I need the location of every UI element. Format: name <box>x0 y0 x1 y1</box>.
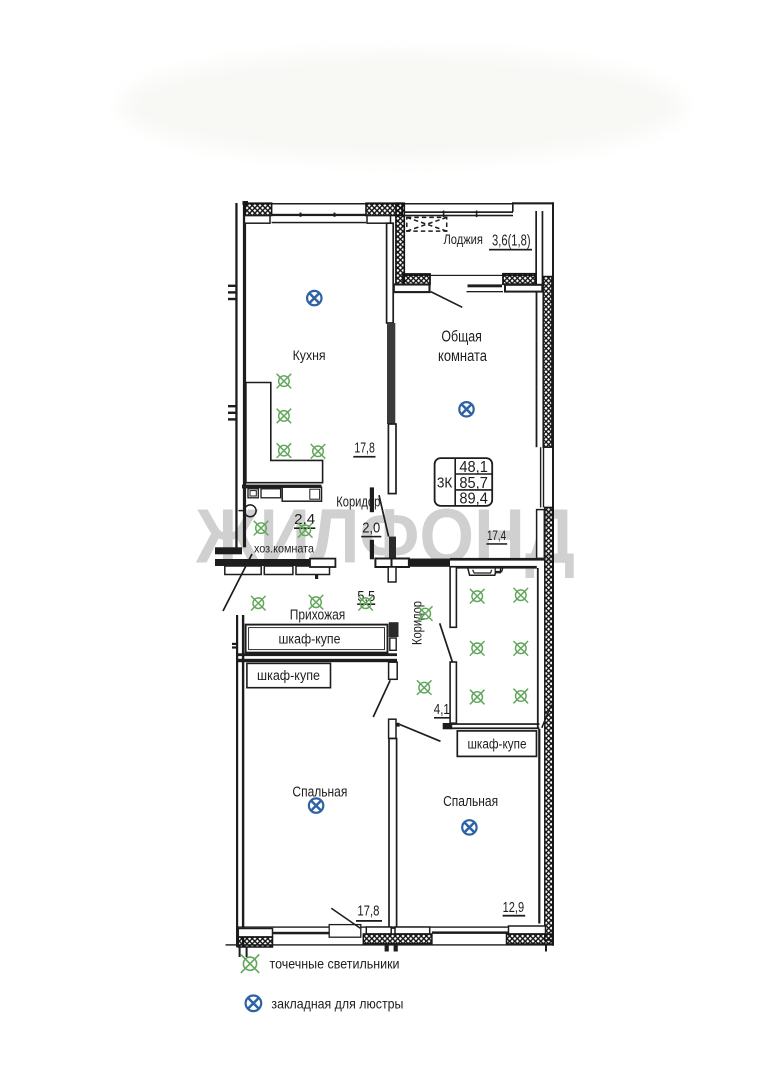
svg-text:12,9: 12,9 <box>503 899 525 916</box>
svg-text:17,4: 17,4 <box>487 527 506 543</box>
svg-text:Прихожая: Прихожая <box>290 606 346 623</box>
svg-text:Кухня: Кухня <box>293 348 326 363</box>
svg-text:комната: комната <box>438 348 487 365</box>
svg-text:17,8: 17,8 <box>357 902 379 919</box>
svg-text:шкаф-купе: шкаф-купе <box>279 632 341 647</box>
svg-text:точечные светильники: точечные светильники <box>270 956 400 972</box>
svg-text:3,6(1,8): 3,6(1,8) <box>492 232 531 249</box>
svg-text:2,0: 2,0 <box>362 519 380 536</box>
svg-text:шкаф-купе: шкаф-купе <box>468 736 527 751</box>
svg-text:Спальная: Спальная <box>292 784 347 801</box>
svg-text:85,7: 85,7 <box>459 475 488 492</box>
svg-text:шкаф-купе: шкаф-купе <box>257 668 320 683</box>
svg-text:Спальная: Спальная <box>443 793 498 810</box>
svg-text:Общая: Общая <box>441 328 482 345</box>
svg-text:Лоджия: Лоджия <box>443 231 483 247</box>
svg-text:48,1: 48,1 <box>459 459 488 476</box>
svg-text:хоз.комната: хоз.комната <box>254 542 314 556</box>
svg-text:89,4: 89,4 <box>459 491 488 508</box>
svg-text:закладная для люстры: закладная для люстры <box>271 995 403 1011</box>
svg-text:4,1: 4,1 <box>434 701 450 718</box>
svg-text:Коридор: Коридор <box>409 601 425 645</box>
svg-text:3К: 3К <box>437 475 453 492</box>
svg-text:17,8: 17,8 <box>354 440 375 457</box>
svg-text:Коридор: Коридор <box>336 494 380 510</box>
